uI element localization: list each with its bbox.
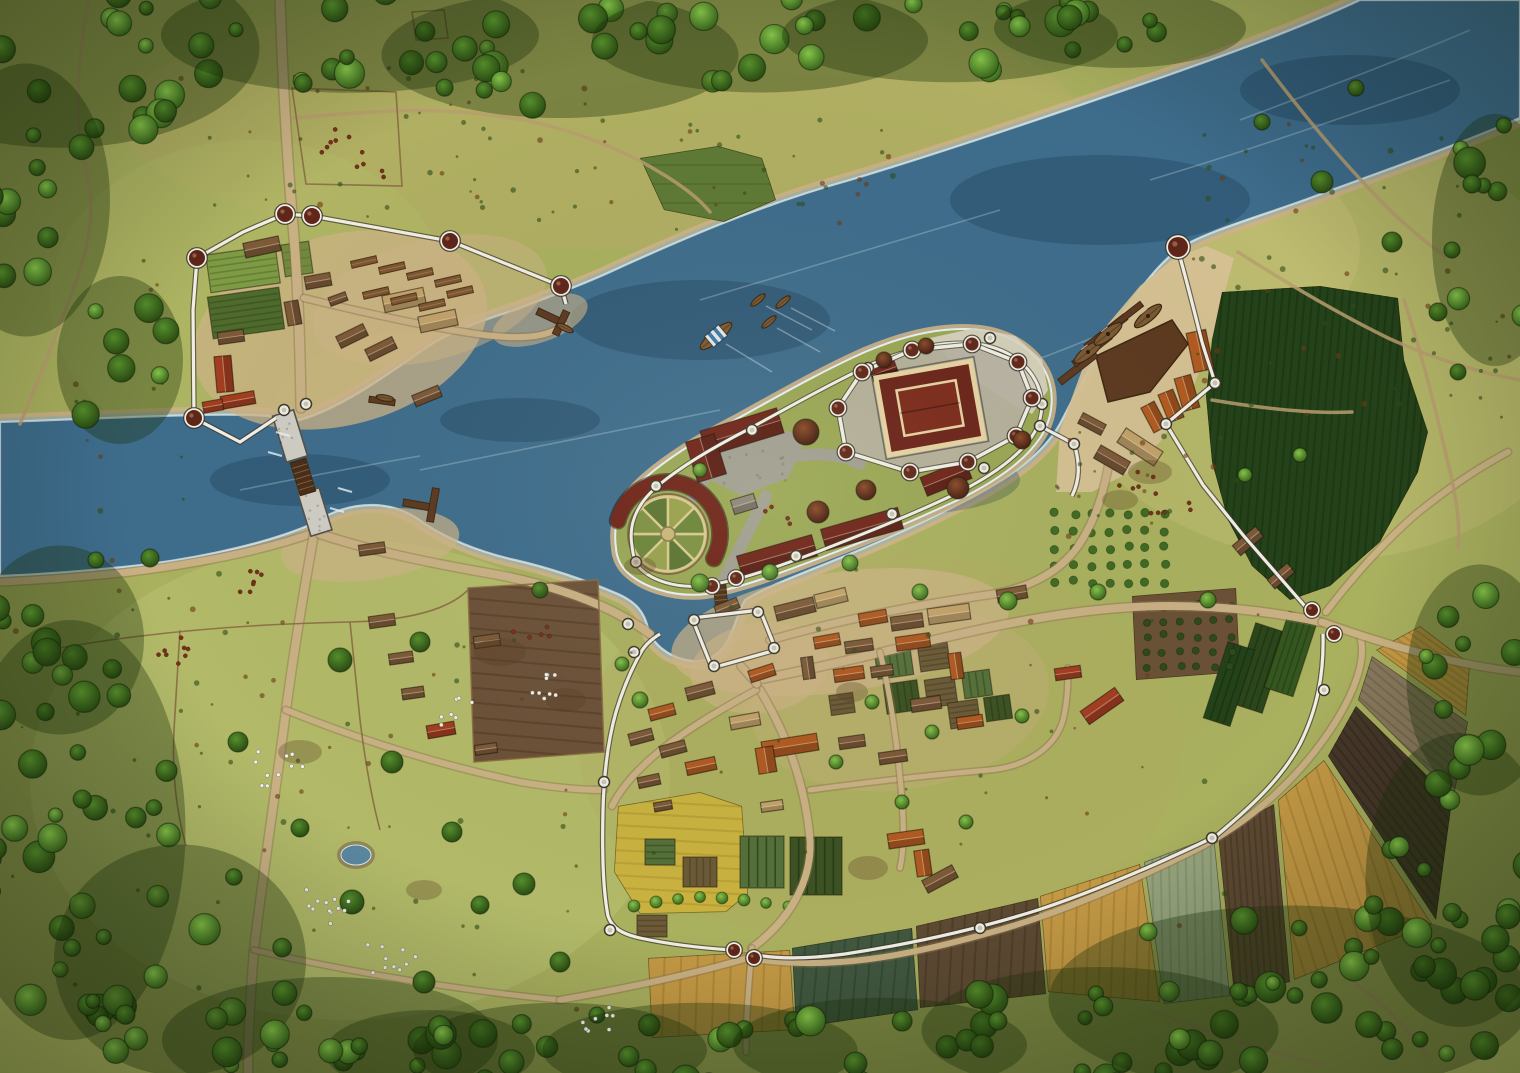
tree	[273, 938, 292, 957]
orchard-tree	[738, 894, 750, 906]
shrub	[688, 123, 692, 127]
shrub	[695, 129, 699, 133]
shrub	[194, 743, 199, 748]
shrub	[1161, 433, 1167, 439]
shrub	[816, 627, 821, 632]
shrub	[566, 910, 569, 913]
shrub	[880, 150, 884, 154]
tree	[88, 304, 103, 319]
map-canvas	[0, 0, 1520, 1073]
shrub	[926, 632, 932, 638]
tree	[1287, 988, 1303, 1004]
tree	[1094, 997, 1113, 1016]
tree	[1447, 288, 1469, 310]
mud-patch	[848, 856, 888, 880]
tree	[1439, 1046, 1454, 1061]
shrub	[265, 198, 268, 201]
shrub	[372, 907, 375, 910]
shrub	[179, 709, 183, 713]
tree	[1239, 1047, 1267, 1073]
tree	[126, 807, 147, 828]
shrub	[432, 673, 436, 677]
shrub	[1211, 264, 1216, 269]
shrub	[688, 129, 693, 134]
gate-tower	[726, 942, 743, 959]
tree	[141, 549, 159, 567]
shrub	[796, 202, 800, 206]
tree	[226, 869, 242, 885]
shrub	[1202, 378, 1208, 384]
wall-tower	[1035, 421, 1046, 432]
wall-tower	[747, 425, 758, 436]
tree	[95, 1016, 111, 1032]
shrub	[537, 137, 543, 143]
tree	[632, 692, 648, 708]
tree	[796, 17, 814, 35]
gate-tower	[1304, 602, 1321, 619]
shrub	[228, 760, 233, 765]
shrub	[1311, 146, 1315, 150]
shrub	[1265, 289, 1269, 293]
tree	[1460, 971, 1489, 1000]
tree	[1389, 837, 1409, 857]
tree	[690, 2, 718, 30]
tree	[18, 750, 46, 778]
shrub	[1202, 778, 1208, 784]
tree	[592, 33, 618, 59]
palisade-tower	[187, 248, 208, 269]
shrub	[600, 118, 605, 123]
tree	[129, 115, 158, 144]
tree	[892, 1011, 912, 1031]
shrub	[271, 678, 276, 683]
shrub	[1150, 619, 1154, 623]
garden-plot	[637, 915, 667, 937]
shrub	[454, 678, 459, 683]
shrub	[1300, 158, 1304, 162]
shrub	[1383, 267, 1389, 273]
shrub	[1361, 401, 1367, 407]
shrub	[1029, 664, 1032, 667]
shrub	[1077, 495, 1081, 499]
shrub	[820, 181, 825, 186]
tree	[1015, 709, 1029, 723]
tree	[1143, 13, 1158, 28]
building	[214, 355, 234, 392]
shrub	[109, 558, 114, 563]
shrub	[480, 200, 483, 203]
shrub	[1393, 387, 1396, 390]
shrub	[385, 205, 390, 210]
shrub	[837, 221, 842, 226]
shrub	[1206, 165, 1211, 170]
building	[755, 746, 777, 774]
tree	[959, 815, 973, 829]
shrub	[1085, 811, 1089, 815]
shrub	[842, 667, 845, 670]
tree	[1090, 584, 1106, 600]
tree	[413, 971, 435, 993]
tree	[107, 11, 132, 36]
shrub	[563, 812, 567, 816]
garden-plot	[645, 839, 675, 865]
shrub	[288, 182, 293, 187]
shrub	[243, 674, 248, 679]
tree	[856, 480, 876, 500]
shrub	[1479, 369, 1483, 373]
tree	[793, 419, 819, 445]
tree	[1496, 904, 1520, 928]
water-blotch	[440, 398, 600, 442]
shrub	[857, 177, 862, 182]
mud-patch	[1128, 460, 1172, 484]
pond	[341, 845, 371, 865]
tree	[693, 463, 707, 477]
shrub	[463, 645, 466, 648]
tree	[1254, 114, 1270, 130]
tree	[615, 657, 629, 671]
shrub	[1395, 273, 1398, 276]
orchard-tree	[650, 896, 662, 908]
tree	[1463, 175, 1481, 193]
shrub	[890, 173, 896, 179]
tree	[1450, 364, 1466, 380]
shrub	[142, 259, 146, 263]
shrub	[388, 734, 393, 739]
tree	[471, 896, 489, 914]
shrub	[1140, 440, 1145, 445]
shrub	[440, 171, 445, 176]
shrub	[743, 191, 747, 195]
tree	[1453, 735, 1484, 766]
shrub	[1078, 462, 1083, 467]
tree	[108, 355, 135, 382]
shrub	[777, 740, 780, 743]
shrub	[880, 129, 883, 132]
tree	[762, 564, 778, 580]
tree	[1139, 923, 1157, 941]
shrub	[609, 200, 613, 204]
tree	[796, 1006, 826, 1036]
shrub	[299, 137, 303, 141]
shrub	[1183, 453, 1188, 458]
tree	[1496, 118, 1511, 133]
shrub	[1479, 396, 1483, 400]
shrub	[1445, 327, 1450, 332]
shrub	[1205, 196, 1211, 202]
tree	[272, 981, 296, 1005]
shrub	[1344, 271, 1349, 276]
shrub	[1199, 256, 1205, 262]
tree	[483, 11, 510, 38]
shrub	[328, 746, 331, 749]
shrub	[1093, 470, 1096, 473]
tree	[999, 592, 1017, 610]
mud-patch	[546, 688, 586, 712]
shrub	[247, 174, 250, 177]
shrub	[86, 439, 89, 442]
shrub	[260, 693, 265, 698]
shrub	[510, 187, 516, 193]
tree	[905, 0, 922, 13]
shrub	[1192, 257, 1195, 260]
shrub	[717, 142, 722, 147]
shrub	[803, 850, 807, 854]
mud-patch	[406, 880, 442, 900]
mud-patch	[624, 557, 656, 575]
ward-tower	[1009, 353, 1027, 371]
tree	[520, 92, 546, 118]
shrub	[98, 454, 103, 459]
ward-tower	[901, 463, 919, 481]
shrub	[1351, 303, 1356, 308]
tree	[1412, 1032, 1428, 1048]
palisade-tower	[184, 408, 205, 429]
shrub	[347, 826, 350, 829]
shrub	[852, 648, 857, 653]
shrub	[1293, 208, 1298, 213]
shrub	[475, 195, 480, 200]
wall-tower	[689, 615, 700, 626]
ward-tower	[963, 335, 981, 353]
ward-tower	[1023, 389, 1041, 407]
shrub	[200, 752, 203, 755]
tree	[1009, 16, 1030, 37]
tree	[1348, 80, 1364, 96]
shrub	[1396, 401, 1402, 407]
wall-tower	[979, 463, 990, 474]
gate-tower	[746, 950, 763, 967]
tree	[476, 82, 492, 98]
tree	[532, 582, 548, 598]
shrub	[712, 186, 715, 189]
shrub	[714, 203, 717, 206]
shrub	[855, 192, 860, 197]
castle-keep	[871, 357, 988, 460]
tree	[1482, 925, 1510, 953]
shrub	[1493, 368, 1498, 373]
tree	[1429, 303, 1447, 321]
tree	[912, 584, 928, 600]
tree	[1311, 171, 1333, 193]
tree	[212, 1037, 242, 1067]
tree	[189, 914, 220, 945]
shrub	[1145, 673, 1150, 678]
palisade-tower	[275, 204, 296, 225]
shrub	[388, 825, 391, 828]
shrub	[167, 597, 170, 600]
shrub	[1142, 489, 1146, 493]
tree	[1382, 1038, 1403, 1059]
shrub	[366, 215, 369, 218]
tree	[426, 52, 447, 73]
shrub	[675, 228, 678, 231]
ward-tower	[829, 399, 847, 417]
tree	[38, 227, 58, 247]
shrub	[404, 114, 409, 119]
tree	[1266, 976, 1280, 990]
shrub	[551, 211, 554, 214]
shrub	[1211, 464, 1217, 470]
shrub	[198, 805, 201, 808]
shrub	[1218, 436, 1223, 441]
wall-tower	[651, 481, 662, 492]
tree	[1473, 582, 1499, 608]
mud-patch	[836, 682, 868, 702]
tree	[442, 822, 462, 842]
shrub	[1500, 416, 1503, 419]
shrub	[1150, 522, 1153, 525]
tree	[29, 159, 45, 175]
shrub	[1214, 348, 1220, 354]
shrub	[1260, 897, 1263, 900]
shrub	[800, 202, 805, 207]
tree	[48, 808, 62, 822]
shrub	[575, 169, 579, 173]
tree	[88, 552, 104, 568]
tree	[38, 180, 56, 198]
palisade-tower	[551, 276, 572, 297]
shrub	[905, 788, 908, 791]
shrub	[1056, 486, 1059, 489]
tree	[1431, 938, 1446, 953]
tree	[499, 1050, 524, 1073]
building	[401, 686, 424, 700]
tree	[119, 75, 146, 102]
shrub	[1267, 255, 1272, 260]
tree	[153, 318, 179, 344]
tree	[436, 79, 453, 96]
shrub	[155, 283, 158, 286]
tree	[86, 994, 100, 1008]
shrub	[246, 621, 249, 624]
shrub	[1322, 321, 1327, 326]
tree	[69, 681, 100, 712]
tree	[1382, 232, 1402, 252]
tree	[69, 135, 94, 160]
tree	[1471, 1032, 1499, 1060]
building	[948, 652, 964, 680]
shrub	[488, 136, 492, 140]
tree	[272, 1052, 288, 1068]
tree	[711, 70, 731, 90]
tree	[512, 1015, 531, 1034]
shrub	[1045, 796, 1048, 799]
shrub	[1196, 353, 1199, 356]
shrub	[312, 215, 315, 218]
ward-tower	[837, 443, 855, 461]
orchard-tree	[761, 898, 772, 909]
water-blotch	[950, 155, 1250, 245]
shrub	[312, 928, 315, 931]
tree	[844, 1052, 867, 1073]
shrub	[475, 925, 480, 930]
shrub	[1097, 514, 1100, 517]
palisade-tower	[440, 231, 461, 252]
shrub	[472, 973, 476, 977]
wall-tower	[1207, 833, 1218, 844]
tree	[1293, 448, 1307, 462]
tree	[381, 751, 403, 773]
wall-tower	[975, 923, 986, 934]
shrub	[1167, 509, 1172, 514]
shrub	[1235, 285, 1241, 291]
tree	[228, 732, 248, 752]
shrub	[180, 456, 183, 459]
shrub	[560, 824, 565, 829]
shrub	[1287, 122, 1291, 126]
shrub	[1203, 133, 1207, 137]
garden-plot	[961, 669, 992, 699]
tree	[24, 258, 51, 285]
tree	[96, 930, 111, 945]
tree	[139, 1, 153, 15]
shrub	[736, 135, 740, 139]
tree	[1365, 896, 1383, 914]
garden-plot	[740, 836, 784, 888]
wall-tower	[887, 509, 898, 520]
tree	[72, 401, 99, 428]
shrub	[1249, 402, 1254, 407]
tree	[15, 984, 46, 1015]
shrub	[1050, 730, 1054, 734]
tree	[959, 22, 978, 41]
tree	[865, 695, 879, 709]
tree	[691, 574, 709, 592]
shrub	[1130, 450, 1135, 455]
shrub	[461, 924, 465, 928]
orchard-tree	[673, 894, 684, 905]
tree	[798, 45, 824, 71]
shrub	[366, 761, 371, 766]
shrub	[886, 154, 892, 160]
wall-tower	[709, 661, 720, 672]
shrub	[190, 606, 196, 612]
shrub	[762, 167, 767, 172]
tree	[1356, 1011, 1382, 1037]
shrub	[469, 190, 472, 193]
shrub	[97, 508, 103, 514]
shrub	[211, 703, 214, 706]
tree	[925, 725, 939, 739]
shrub	[1244, 149, 1248, 153]
tree	[1419, 649, 1433, 663]
shrub	[317, 202, 323, 208]
tree	[1435, 700, 1453, 718]
tree	[1169, 1029, 1190, 1050]
tree	[947, 477, 969, 499]
tree	[154, 100, 176, 122]
tree	[116, 1005, 135, 1024]
shrub	[1432, 351, 1436, 355]
shrub	[1301, 346, 1306, 351]
mud-patch	[1102, 490, 1138, 510]
shrub	[575, 864, 578, 867]
garden-plot	[983, 694, 1012, 721]
tree	[969, 49, 999, 79]
tree	[351, 1038, 368, 1055]
tree	[491, 71, 511, 91]
tree	[513, 873, 535, 895]
tree	[146, 800, 162, 816]
wall-tower	[1210, 378, 1221, 389]
wall-tower	[753, 607, 764, 618]
shrub	[1305, 413, 1309, 417]
shrub	[454, 642, 459, 647]
orchard-tree	[694, 891, 705, 902]
shrub	[593, 166, 596, 169]
tree	[410, 632, 430, 652]
